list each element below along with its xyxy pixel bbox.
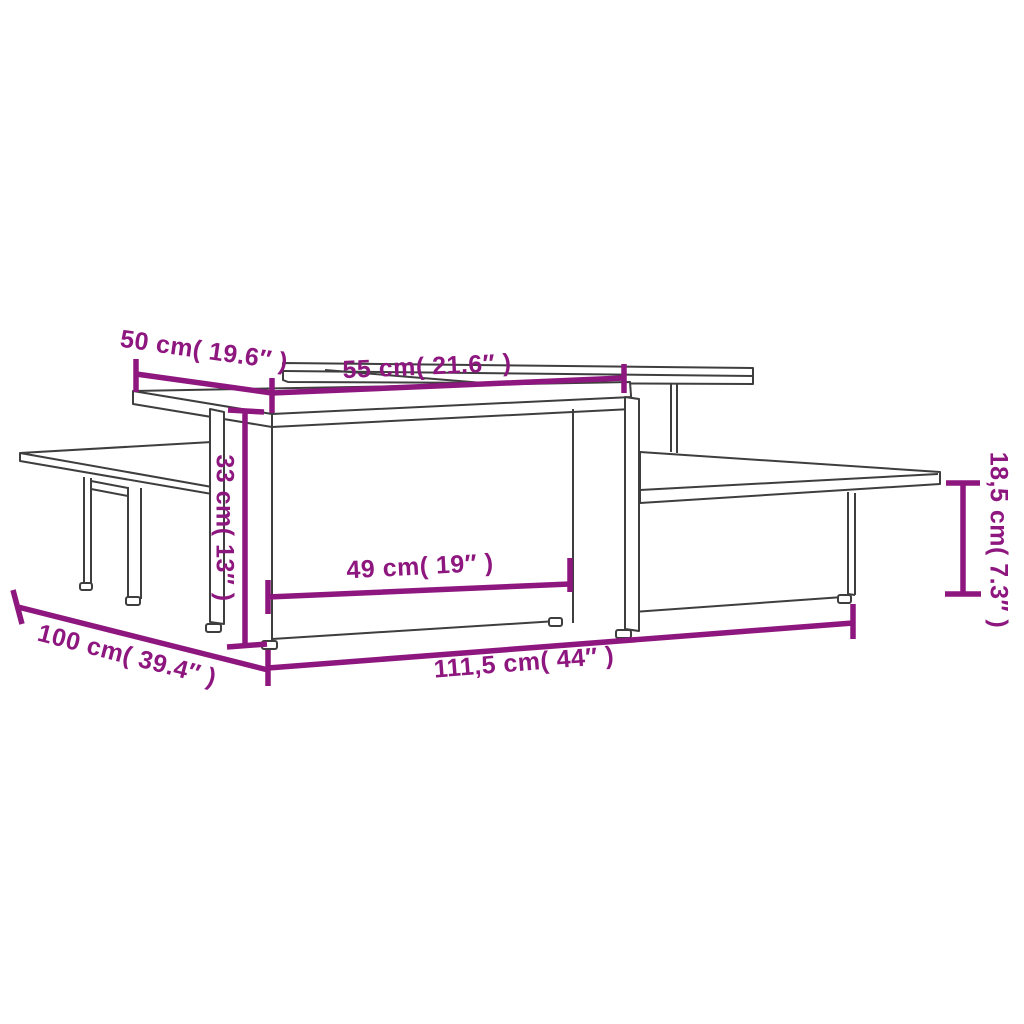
dimension-label-18-5cm: 18,5 cm( 7.3″ ) [986,452,1011,629]
left-low-table [20,442,212,605]
furniture-line-art [0,0,1024,1024]
dimension-label-33cm: 33 cm( 13″ ) [212,454,237,601]
right-low-table [633,452,940,612]
tall-table [133,382,639,649]
dim-line-18_5cm [945,483,981,594]
product-dimension-diagram: 50 cm( 19.6″ ) 55 cm( 21.6″ ) 33 cm( 13″… [0,0,1024,1024]
